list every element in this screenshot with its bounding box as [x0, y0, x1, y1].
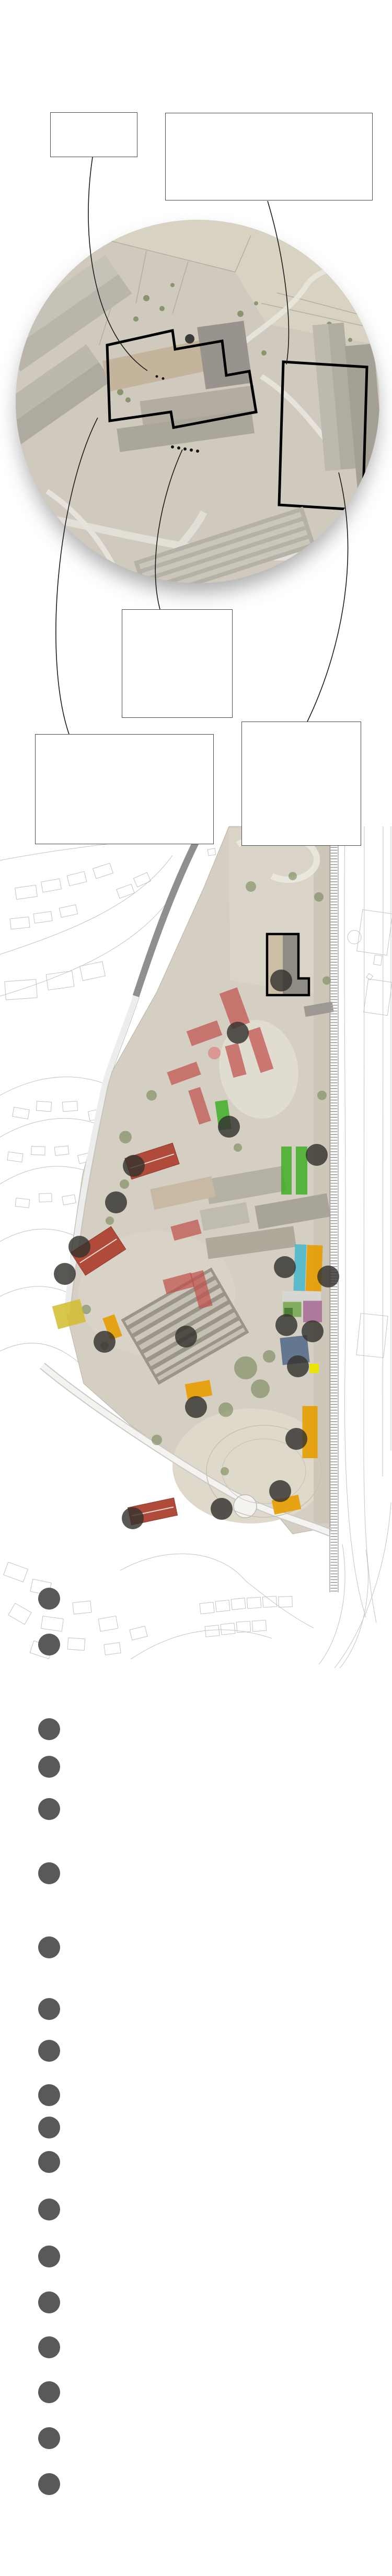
- map-marker: [105, 1191, 127, 1213]
- aerial-detail-inset: [16, 220, 379, 583]
- legend-bullet: [38, 2040, 60, 2062]
- map-marker: [270, 970, 292, 991]
- box-top-small: [50, 112, 137, 157]
- map-marker: [185, 1396, 207, 1418]
- overlay-green-rect: [281, 1147, 292, 1195]
- map-marker: [285, 1428, 307, 1450]
- railway: [330, 824, 338, 1592]
- legend-bullet: [38, 2381, 60, 2403]
- cad-linework-right: [344, 826, 392, 1623]
- overlay-green-rect: [296, 1147, 307, 1195]
- map-marker: [68, 1236, 90, 1258]
- map-marker: [274, 1256, 296, 1278]
- legend-bullet: [38, 1718, 60, 1740]
- site-plan-map: [0, 824, 392, 1668]
- legend-bullet: [38, 1588, 60, 1610]
- legend-bullet: [38, 2199, 60, 2220]
- box-bottom-right: [241, 722, 361, 846]
- map-marker: [94, 1331, 116, 1353]
- map-marker: [54, 1263, 76, 1285]
- legend-bullet: [38, 2473, 60, 2495]
- map-marker: [306, 1144, 328, 1166]
- map-marker: [269, 1480, 291, 1502]
- box-top-large: [165, 113, 373, 200]
- legend-bullet: [38, 1862, 60, 1884]
- map-marker: [175, 1326, 197, 1348]
- overlay-pink-circle: [208, 1047, 221, 1059]
- map-marker: [287, 1355, 309, 1377]
- overlay-orange-rect: [305, 1245, 322, 1292]
- map-marker: [123, 1155, 145, 1177]
- legend-bullet: [38, 1936, 60, 1958]
- box-middle: [122, 609, 233, 718]
- map-marker: [317, 1266, 339, 1287]
- legend-bullet: [38, 1634, 60, 1656]
- map-marker: [218, 1116, 240, 1138]
- overlay-yellow-rect: [309, 1364, 319, 1373]
- map-marker: [302, 1320, 324, 1342]
- legend-bullet: [38, 2084, 60, 2106]
- legend-bullet: [38, 1798, 60, 1820]
- legend-bullet: [38, 2151, 60, 2173]
- overlay-purple-rect: [303, 1301, 322, 1322]
- map-marker: [227, 1022, 249, 1044]
- legend-bullet: [38, 2336, 60, 2358]
- legend-bullet: [38, 2291, 60, 2313]
- analysis-board: [0, 0, 392, 2576]
- legend-bullet: [38, 2117, 60, 2138]
- box-bottom-left: [35, 734, 214, 844]
- legend-bullet: [38, 2246, 60, 2267]
- legend-bullet: [38, 2427, 60, 2449]
- map-marker: [275, 1314, 297, 1336]
- legend-bullet: [38, 1756, 60, 1778]
- map-marker: [211, 1498, 233, 1520]
- legend-bullet: [38, 1998, 60, 2020]
- map-marker: [122, 1507, 144, 1529]
